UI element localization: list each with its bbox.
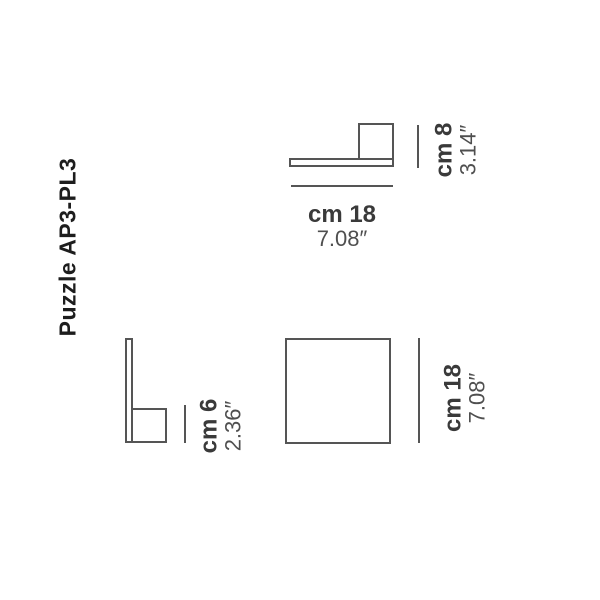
side-view-wall-plate xyxy=(125,338,133,443)
height-inch-value: 3.14″ xyxy=(457,123,481,178)
top-view-lamp-body xyxy=(358,123,394,160)
depth-cm-value: cm 6 xyxy=(197,399,222,454)
depth-inch-value: 2.36″ xyxy=(222,399,246,454)
top-view-height-label: cm 8 3.14″ xyxy=(432,123,481,178)
front-view-height-dimension-line xyxy=(418,338,420,443)
width-cm-value: cm 18 xyxy=(292,202,392,227)
top-view-wall-plate xyxy=(289,158,394,167)
front-view-lamp-face xyxy=(285,338,391,444)
top-view-height-dimension-line xyxy=(417,125,419,168)
side-view-depth-label: cm 6 2.36″ xyxy=(197,399,246,454)
side-view-depth-dimension-line xyxy=(184,405,186,443)
height-cm-value: cm 8 xyxy=(432,123,457,178)
top-view-width-dimension-line xyxy=(291,185,393,187)
dimension-diagram: Puzzle AP3-PL3 cm 18 7.08″ cm 8 3.14″ cm… xyxy=(0,0,600,600)
front-height-cm-value: cm 18 xyxy=(441,364,466,432)
front-view-height-label: cm 18 7.08″ xyxy=(441,364,490,432)
width-inch-value: 7.08″ xyxy=(292,227,392,251)
product-title: Puzzle AP3-PL3 xyxy=(55,158,82,337)
side-view-lamp-body xyxy=(131,408,167,443)
front-height-inch-value: 7.08″ xyxy=(466,364,490,432)
top-view-width-label: cm 18 7.08″ xyxy=(292,202,392,251)
